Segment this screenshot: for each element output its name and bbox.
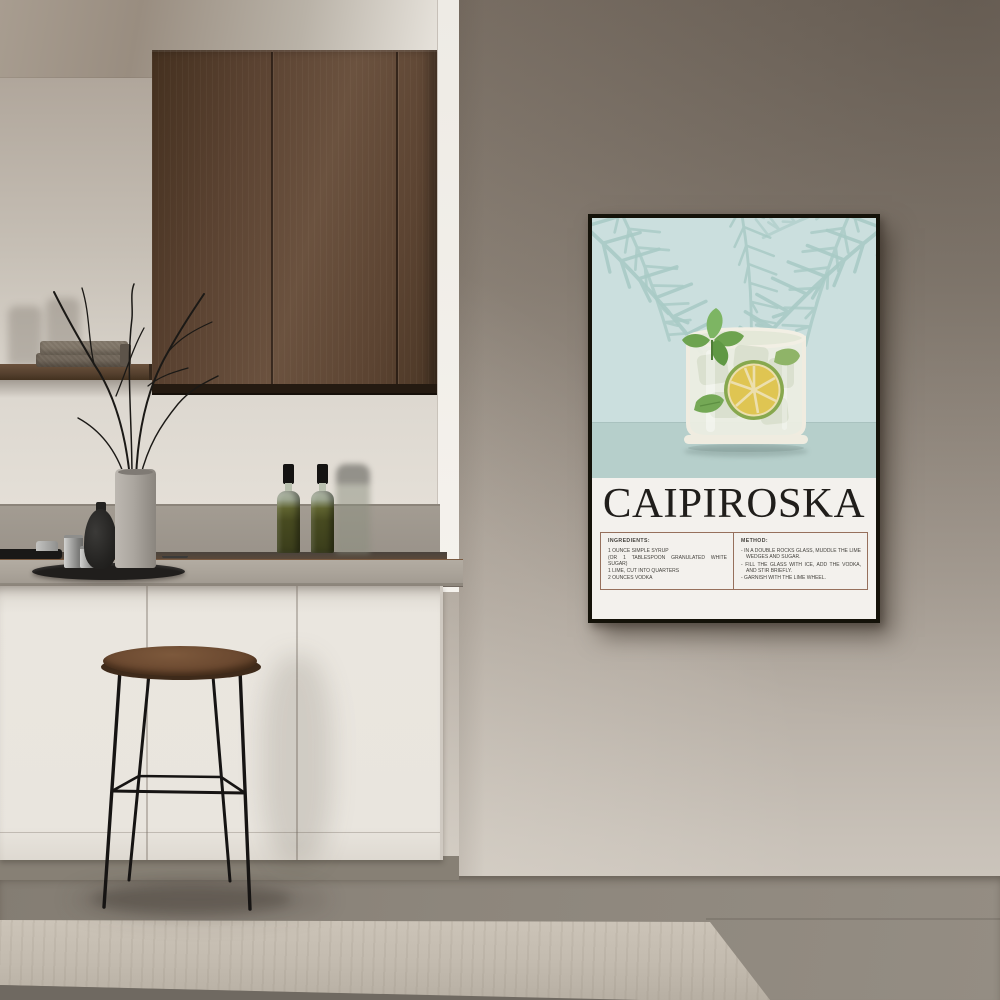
small-pot	[36, 541, 58, 551]
ingredient-line: 1 OUNCE SIMPLE SYRUP	[608, 548, 727, 554]
dry-branches	[30, 278, 240, 483]
lime-wheel-icon	[724, 360, 784, 420]
ingredient-line: (OR 1 TABLESPOON GRANULATED WHITE SUGAR)	[608, 555, 727, 567]
oil-bottle-cap	[317, 464, 328, 484]
olive-oil-bottle	[277, 491, 300, 553]
poster-title: CAIPIROSKA	[592, 482, 876, 526]
method-step: - GARNISH WITH THE LIME WHEEL.	[741, 575, 861, 581]
floor-seam-line	[706, 918, 1000, 920]
black-vase	[84, 509, 117, 569]
ingredients-header: INGREDIENTS:	[608, 538, 727, 544]
corner-wall-return	[437, 0, 459, 592]
stool-legs	[88, 638, 272, 928]
method-step: - FILL THE GLASS WITH ICE, ADD THE VODKA…	[741, 562, 861, 574]
recipe-box: INGREDIENTS: 1 OUNCE SIMPLE SYRUP (OR 1 …	[600, 532, 868, 590]
method-step: - IN A DOUBLE ROCKS GLASS, MUDDLE THE LI…	[741, 548, 861, 560]
corner-shadow	[459, 0, 485, 876]
cabinet-door-seam	[271, 52, 273, 384]
kitchen-interior-scene: CAIPIROSKA INGREDIENTS: 1 OUNCE SIMPLE S…	[0, 0, 1000, 1000]
method-header: METHOD:	[741, 538, 861, 544]
metal-box	[162, 546, 188, 558]
ingredients-column: INGREDIENTS: 1 OUNCE SIMPLE SYRUP (OR 1 …	[601, 533, 734, 589]
stool-seat	[103, 646, 257, 676]
cocktail-glass-art	[680, 306, 812, 458]
caipiroska-poster: CAIPIROSKA INGREDIENTS: 1 OUNCE SIMPLE S…	[592, 218, 876, 619]
vase-mouth	[118, 469, 153, 475]
bottle-shadow-on-backsplash	[336, 464, 370, 554]
ingredient-line: 1 LIME, CUT INTO QUARTERS	[608, 568, 727, 574]
stool-shadow-on-cabinet	[262, 655, 332, 865]
ingredient-line: 2 OUNCES VODKA	[608, 575, 727, 581]
base-cabinet-end-panel	[440, 586, 443, 860]
poster-frame: CAIPIROSKA INGREDIENTS: 1 OUNCE SIMPLE S…	[588, 214, 880, 623]
cabinet-door-seam	[396, 52, 398, 384]
concrete-vase	[115, 469, 156, 568]
method-column: METHOD: - IN A DOUBLE ROCKS GLASS, MUDDL…	[734, 533, 867, 589]
oil-bottle-cap	[283, 464, 294, 484]
olive-oil-bottle	[311, 491, 334, 553]
